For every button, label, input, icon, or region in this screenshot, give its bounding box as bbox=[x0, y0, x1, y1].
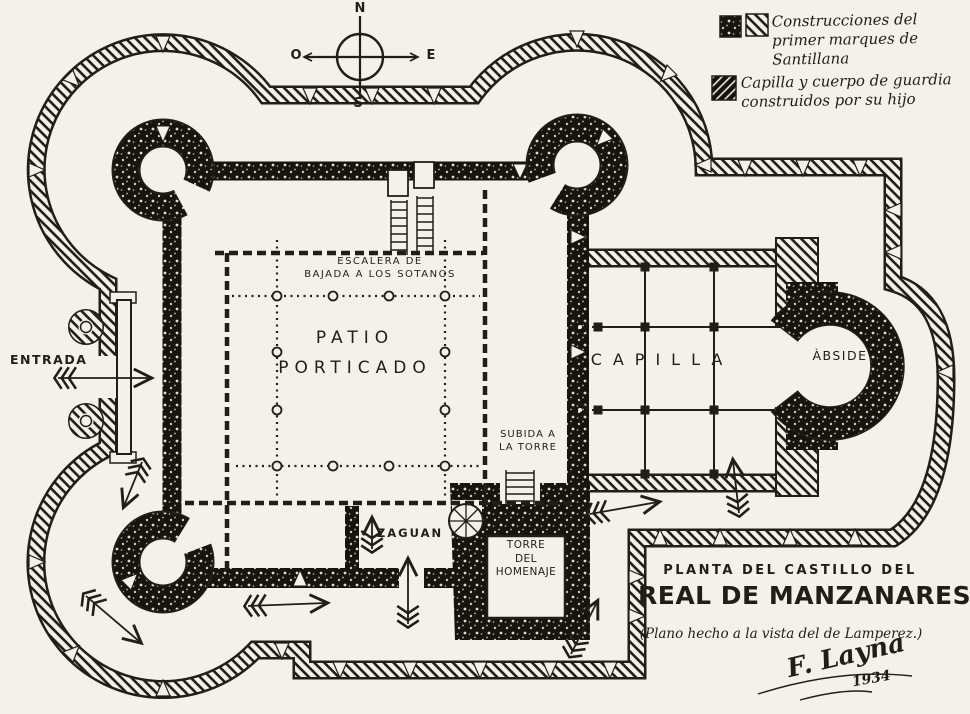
label-patio-line2: PORTICADO bbox=[265, 354, 445, 384]
label-patio-line1: PATIO bbox=[265, 324, 445, 354]
tower-stair bbox=[500, 470, 540, 504]
label-subida-line1: SUBIDA A bbox=[478, 429, 578, 442]
apse bbox=[772, 292, 904, 440]
entrance-turret-south bbox=[69, 404, 103, 438]
label-escalera-sotanos: ESCALERA DE BAJADA A LOS SOTANOS bbox=[280, 256, 480, 281]
label-torre-homenaje: TORRE DEL HOMENAJE bbox=[487, 539, 565, 580]
label-escalera-line2: BAJADA A LOS SOTANOS bbox=[280, 269, 480, 282]
label-patio-porticado: PATIO PORTICADO bbox=[265, 324, 445, 384]
chapel-vault-grid bbox=[592, 267, 798, 474]
label-subida-torre: SUBIDA A LA TORRE bbox=[478, 429, 578, 454]
compass-south: S bbox=[346, 96, 370, 112]
legend-item-1: Construcciones del primer marques de San… bbox=[772, 9, 965, 69]
corner-tower-sw bbox=[113, 500, 232, 613]
chapel-pier-bases bbox=[594, 263, 797, 479]
compass-north: N bbox=[348, 1, 372, 17]
label-escalera-line1: ESCALERA DE bbox=[280, 256, 480, 269]
legend-swatch-hatch bbox=[746, 14, 768, 36]
label-subida-line2: LA TORRE bbox=[478, 442, 578, 455]
title-supertitle: PLANTA DEL CASTILLO DEL bbox=[660, 563, 920, 579]
label-abside: ÀBSIDE bbox=[795, 348, 885, 364]
label-torre-line1: TORRE bbox=[487, 539, 565, 553]
label-entrada: ENTRADA bbox=[10, 352, 87, 368]
legend-swatch-solid bbox=[720, 16, 741, 37]
compass-west: O bbox=[284, 48, 308, 64]
castle-plan-sheet: ENTRADA PATIO PORTICADO ESCALERA DE BAJA… bbox=[0, 0, 970, 714]
label-torre-line2: DEL bbox=[487, 553, 565, 567]
entrance-turret-north bbox=[69, 310, 103, 344]
corner-tower-ne bbox=[509, 115, 628, 227]
legend-item-2: Capilla y cuerpo de guardia construidos … bbox=[741, 70, 960, 111]
legend-swatch-crosshatch bbox=[712, 76, 736, 100]
compass-east: E bbox=[419, 48, 443, 64]
label-capilla: CAPILLA bbox=[582, 350, 742, 370]
label-torre-line3: HOMENAJE bbox=[487, 566, 565, 580]
label-zaguan: ZAGUAN bbox=[360, 526, 460, 540]
page-title: REAL DE MANZANARES bbox=[638, 580, 940, 611]
